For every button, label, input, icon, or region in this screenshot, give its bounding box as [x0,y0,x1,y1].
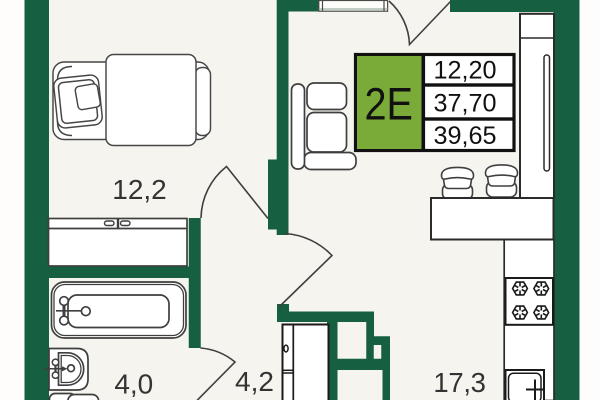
svg-text:12,20: 12,20 [433,56,496,84]
svg-text:39,65: 39,65 [433,122,496,150]
svg-text:37,70: 37,70 [433,89,496,117]
svg-text:17,3: 17,3 [433,367,485,398]
svg-text:4,2: 4,2 [235,366,274,397]
svg-text:12,2: 12,2 [112,174,167,205]
svg-text:2E: 2E [365,79,414,130]
svg-text:4,0: 4,0 [114,369,153,400]
